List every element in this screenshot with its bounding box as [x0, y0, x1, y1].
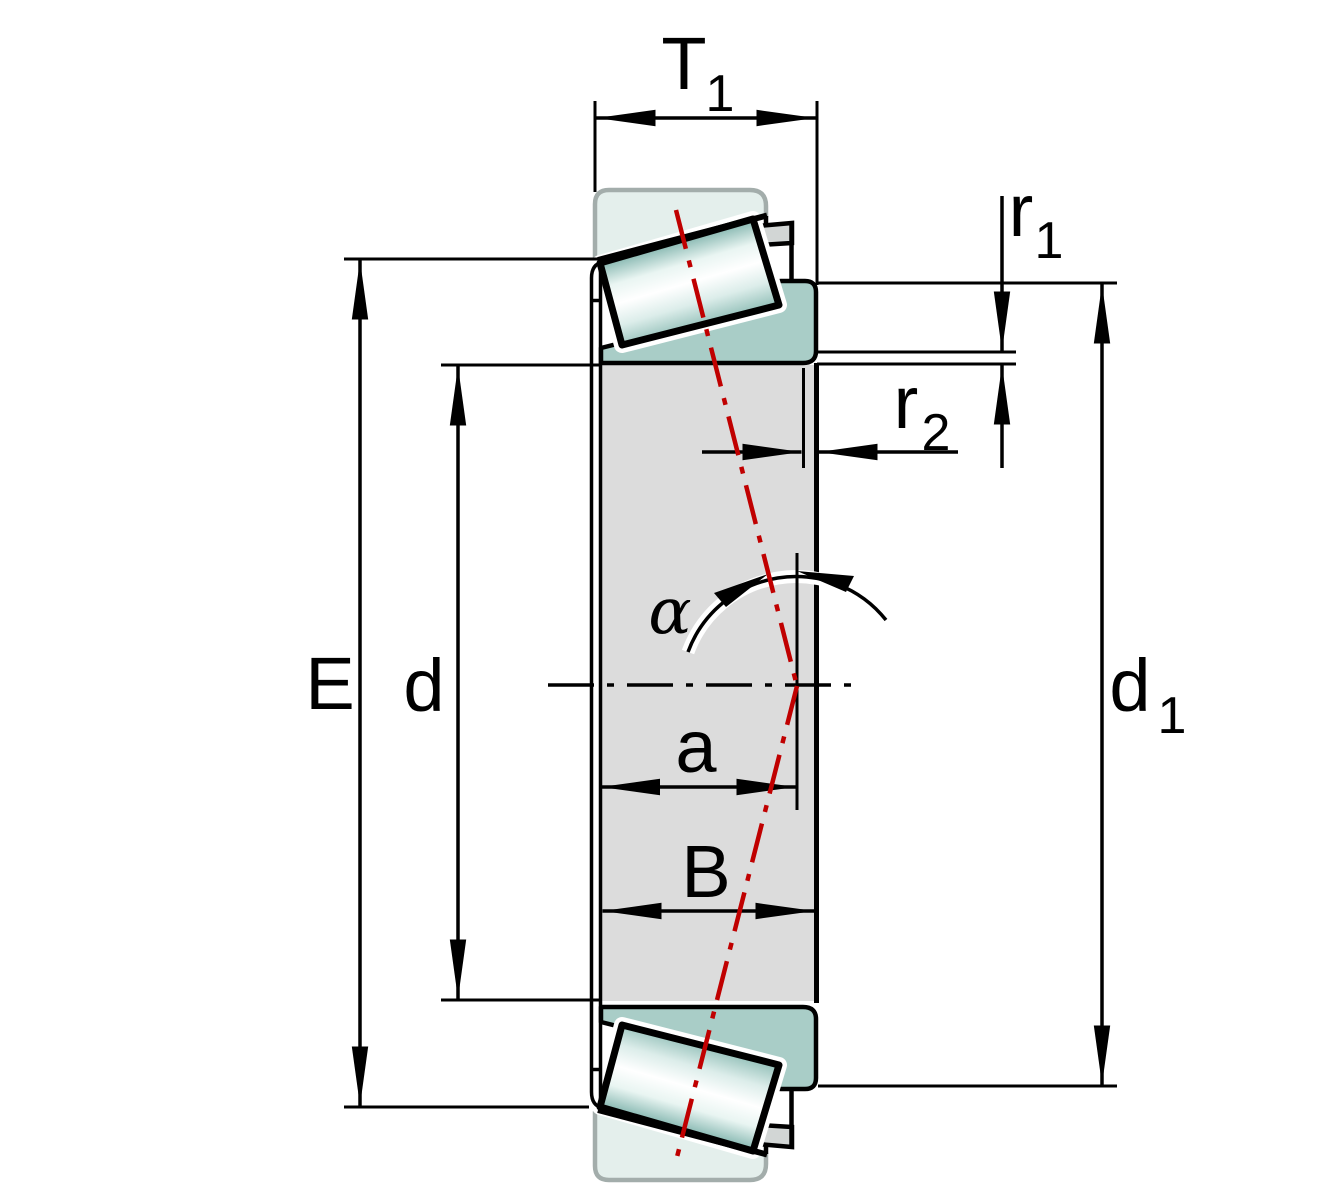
label-T1-sub: 1: [706, 65, 735, 123]
label-d: d: [403, 644, 444, 727]
label-r1: r: [1009, 169, 1034, 252]
label-r1-sub: 1: [1035, 212, 1064, 270]
label-E: E: [305, 642, 354, 725]
label-T1: T: [661, 22, 706, 105]
label-d1-sub: 1: [1158, 687, 1187, 745]
label-d1: d: [1109, 644, 1150, 727]
bearing-diagram-svg: T 1 r 1 r 2 E d d 1 a B α: [0, 0, 1330, 1200]
label-r2-sub: 2: [922, 404, 951, 462]
bearing-dimension-drawing: T 1 r 1 r 2 E d d 1 a B α: [0, 0, 1330, 1200]
label-a: a: [675, 705, 717, 788]
label-alpha: α: [648, 575, 691, 649]
label-r2: r: [894, 361, 919, 444]
label-B: B: [681, 830, 730, 913]
